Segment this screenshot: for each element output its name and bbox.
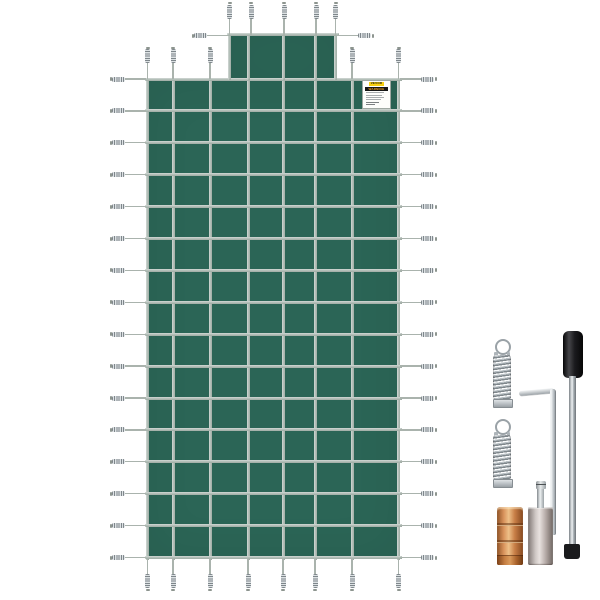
edge-anchor-tick <box>281 589 285 591</box>
edge-anchor-tick <box>110 492 112 496</box>
edge-anchor-tick <box>435 300 437 304</box>
grid-strap-v <box>172 78 175 560</box>
edge-anchor-tick <box>110 205 112 209</box>
grid-strap-v <box>209 78 212 560</box>
grid-strap-v <box>282 78 285 560</box>
step-strap-v <box>334 33 337 80</box>
edge-spring-line <box>229 19 230 35</box>
edge-anchor-tick <box>313 589 317 591</box>
edge-spring-coil <box>112 555 125 560</box>
edge-anchor-tick <box>435 173 437 177</box>
edge-spring-coil <box>112 332 125 337</box>
edge-spring-line <box>125 174 146 175</box>
step-strap-v <box>228 33 231 80</box>
edge-spring-line <box>209 63 210 79</box>
edge-spring-line <box>125 238 146 239</box>
label-text-line <box>366 97 384 98</box>
edge-anchor-tick <box>435 77 437 81</box>
edge-spring-coil <box>421 77 434 82</box>
edge-spring-coil <box>112 268 125 273</box>
edge-spring-coil <box>112 459 125 464</box>
edge-anchor-tick <box>110 396 112 400</box>
tension-spring-2 <box>493 419 511 486</box>
edge-spring-line <box>125 429 146 430</box>
screw-anchor <box>528 507 553 566</box>
edge-anchor-tick <box>334 2 338 4</box>
edge-spring-line <box>207 35 228 36</box>
edge-spring-line <box>147 63 148 79</box>
edge-spring-line <box>125 142 146 143</box>
step-strap-v <box>247 33 250 80</box>
edge-anchor-tick <box>110 268 112 272</box>
edge-spring-coil <box>112 396 125 401</box>
edge-anchor-tick <box>110 300 112 304</box>
edge-anchor-tick <box>435 237 437 241</box>
edge-spring-coil <box>421 332 434 337</box>
edge-anchor-tick <box>435 268 437 272</box>
anchor-screw-stem <box>537 487 544 508</box>
brand-badge: VEVOR <box>369 82 384 85</box>
step-strap-v <box>282 33 285 80</box>
tension-spring-1 <box>493 339 511 406</box>
edge-spring-coil <box>421 172 434 177</box>
edge-anchor-tick <box>146 589 150 591</box>
edge-spring-line <box>398 558 399 574</box>
edge-anchor-tick <box>110 524 112 528</box>
edge-spring-line <box>400 397 421 398</box>
grid-strap-v <box>146 78 149 560</box>
edge-spring-coil <box>313 574 318 588</box>
edge-anchor-tick <box>435 205 437 209</box>
edge-spring-coil <box>112 204 125 209</box>
edge-spring-line <box>400 110 421 111</box>
spring-plate <box>493 479 513 488</box>
edge-spring-coil <box>112 427 125 432</box>
grid-strap-h <box>145 205 402 208</box>
edge-spring-line <box>400 206 421 207</box>
edge-spring-coil <box>314 5 319 19</box>
edge-spring-coil <box>249 5 254 19</box>
edge-spring-line <box>315 19 316 35</box>
edge-spring-line <box>400 429 421 430</box>
grid-strap-h <box>145 556 402 559</box>
edge-spring-coil <box>350 49 355 63</box>
edge-spring-coil <box>281 574 286 588</box>
edge-spring-coil <box>246 574 251 588</box>
edge-anchor-tick <box>435 141 437 145</box>
edge-anchor-tick <box>171 589 175 591</box>
edge-spring-coil <box>350 574 355 588</box>
edge-anchor-tick <box>171 47 175 49</box>
edge-spring-coil <box>145 574 150 588</box>
edge-anchor-tick <box>192 34 194 38</box>
edge-spring-coil <box>208 49 213 63</box>
edge-spring-coil <box>421 236 434 241</box>
grid-strap-v <box>397 78 400 560</box>
edge-spring-coil <box>421 300 434 305</box>
edge-spring-coil <box>112 523 125 528</box>
edge-spring-coil <box>282 5 287 19</box>
edge-spring-coil <box>421 364 434 369</box>
edge-spring-line <box>247 558 248 574</box>
edge-spring-line <box>125 110 146 111</box>
grid-strap-v <box>247 78 250 560</box>
brass-anchor <box>497 507 523 566</box>
label-text-line <box>366 104 375 105</box>
edge-spring-coil <box>421 523 434 528</box>
installation-rod <box>562 331 583 560</box>
grid-strap-h <box>145 109 402 112</box>
edge-spring-coil <box>227 5 232 19</box>
edge-anchor-tick <box>397 589 401 591</box>
edge-anchor-tick <box>110 237 112 241</box>
grid-strap-h <box>145 237 402 240</box>
edge-spring-coil <box>421 491 434 496</box>
edge-spring-line <box>125 206 146 207</box>
edge-spring-line <box>125 493 146 494</box>
edge-spring-coil <box>396 49 401 63</box>
edge-anchor-tick <box>110 364 112 368</box>
edge-spring-coil <box>396 574 401 588</box>
grid-strap-h <box>145 365 402 368</box>
edge-spring-coil <box>112 236 125 241</box>
label-text-line <box>366 92 384 93</box>
edge-spring-line <box>147 558 148 574</box>
edge-spring-coil <box>421 555 434 560</box>
rod-shaft <box>569 376 576 546</box>
edge-spring-line <box>400 302 421 303</box>
edge-anchor-tick <box>110 556 112 560</box>
edge-spring-line <box>125 525 146 526</box>
edge-spring-coil <box>145 49 150 63</box>
grid-strap-h <box>145 269 402 272</box>
edge-spring-line <box>125 334 146 335</box>
label-text-line <box>366 102 379 103</box>
edge-spring-line <box>400 493 421 494</box>
edge-anchor-tick <box>110 77 112 81</box>
edge-spring-coil <box>171 49 176 63</box>
grid-strap-h <box>145 141 402 144</box>
edge-spring-coil <box>421 396 434 401</box>
product-image: VEVOR WARNING <box>0 0 600 600</box>
edge-anchor-tick <box>435 396 437 400</box>
rod-handle <box>563 331 583 378</box>
edge-anchor-tick <box>350 47 354 49</box>
edge-spring-coil <box>421 459 434 464</box>
edge-anchor-tick <box>372 34 374 38</box>
edge-spring-line <box>282 558 283 574</box>
edge-spring-line <box>335 19 336 35</box>
edge-spring-line <box>314 558 315 574</box>
spring-plate <box>493 399 513 408</box>
edge-anchor-tick <box>350 589 354 591</box>
anchor-hex-base <box>497 555 523 565</box>
warning-heading: WARNING <box>365 87 388 91</box>
edge-anchor-tick <box>110 428 112 432</box>
edge-anchor-tick <box>435 364 437 368</box>
edge-spring-line <box>337 35 358 36</box>
edge-spring-line <box>400 365 421 366</box>
edge-spring-coil <box>194 33 207 38</box>
rod-tip <box>564 544 580 559</box>
edge-anchor-tick <box>208 47 212 49</box>
edge-anchor-tick <box>435 556 437 560</box>
edge-spring-coil <box>112 108 125 113</box>
spring-coil <box>493 435 511 480</box>
edge-spring-line <box>400 461 421 462</box>
edge-anchor-tick <box>435 492 437 496</box>
edge-spring-line <box>351 63 352 79</box>
edge-anchor-tick <box>146 47 150 49</box>
edge-spring-coil <box>421 268 434 273</box>
spring-coil <box>493 355 511 400</box>
grid-strap-h <box>145 173 402 176</box>
grid-strap-h <box>145 492 402 495</box>
edge-spring-line <box>125 397 146 398</box>
hex-key-short-arm <box>519 388 554 396</box>
edge-spring-coil <box>421 427 434 432</box>
edge-spring-line <box>400 238 421 239</box>
edge-anchor-tick <box>435 332 437 336</box>
edge-anchor-tick <box>435 460 437 464</box>
label-text-line <box>366 99 381 100</box>
edge-spring-line <box>250 19 251 35</box>
edge-anchor-tick <box>282 2 286 4</box>
edge-anchor-tick <box>110 109 112 113</box>
edge-spring-line <box>400 525 421 526</box>
edge-spring-coil <box>112 172 125 177</box>
edge-spring-coil <box>208 574 213 588</box>
grid-strap-h <box>145 333 402 336</box>
edge-spring-line <box>125 461 146 462</box>
anchor-groove <box>497 540 523 543</box>
edge-spring-coil <box>333 5 338 19</box>
edge-spring-line <box>400 270 421 271</box>
edge-spring-coil <box>421 204 434 209</box>
edge-anchor-tick <box>246 589 250 591</box>
grid-strap-v <box>351 78 354 560</box>
edge-spring-line <box>400 78 421 79</box>
grid-strap-v <box>314 78 317 560</box>
edge-spring-coil <box>421 140 434 145</box>
grid-strap-h <box>145 524 402 527</box>
grid-strap-h <box>145 301 402 304</box>
edge-anchor-tick <box>208 589 212 591</box>
edge-spring-line <box>283 19 284 35</box>
step-strap-v <box>314 33 317 80</box>
edge-anchor-tick <box>110 173 112 177</box>
edge-spring-coil <box>112 77 125 82</box>
edge-anchor-tick <box>314 2 318 4</box>
edge-anchor-tick <box>435 109 437 113</box>
edge-spring-line <box>398 63 399 79</box>
grid-strap-h <box>145 397 402 400</box>
edge-spring-line <box>400 334 421 335</box>
edge-spring-line <box>172 63 173 79</box>
edge-spring-line <box>125 270 146 271</box>
edge-spring-line <box>172 558 173 574</box>
edge-spring-line <box>351 558 352 574</box>
label-text-lines <box>366 92 387 106</box>
edge-spring-coil <box>421 108 434 113</box>
edge-spring-coil <box>358 33 371 38</box>
edge-anchor-tick <box>110 141 112 145</box>
label-text-line <box>366 95 382 96</box>
grid-strap-h <box>145 460 402 463</box>
anchor-screw-slot <box>536 484 546 486</box>
edge-spring-coil <box>112 491 125 496</box>
edge-spring-coil <box>171 574 176 588</box>
warning-label: VEVOR WARNING <box>362 80 391 109</box>
edge-spring-line <box>209 558 210 574</box>
edge-spring-coil <box>112 140 125 145</box>
edge-spring-line <box>400 142 421 143</box>
edge-spring-line <box>125 557 146 558</box>
edge-anchor-tick <box>435 524 437 528</box>
edge-spring-line <box>125 365 146 366</box>
edge-anchor-tick <box>110 332 112 336</box>
edge-anchor-tick <box>110 460 112 464</box>
edge-spring-line <box>400 174 421 175</box>
cover-body <box>146 79 400 558</box>
edge-spring-coil <box>112 300 125 305</box>
edge-anchor-tick <box>228 2 232 4</box>
grid-strap-h <box>145 428 402 431</box>
edge-spring-line <box>125 78 146 79</box>
edge-spring-line <box>400 557 421 558</box>
edge-spring-line <box>125 302 146 303</box>
anchor-groove <box>497 523 523 526</box>
edge-anchor-tick <box>435 428 437 432</box>
edge-spring-coil <box>112 364 125 369</box>
edge-anchor-tick <box>397 47 401 49</box>
edge-anchor-tick <box>249 2 253 4</box>
